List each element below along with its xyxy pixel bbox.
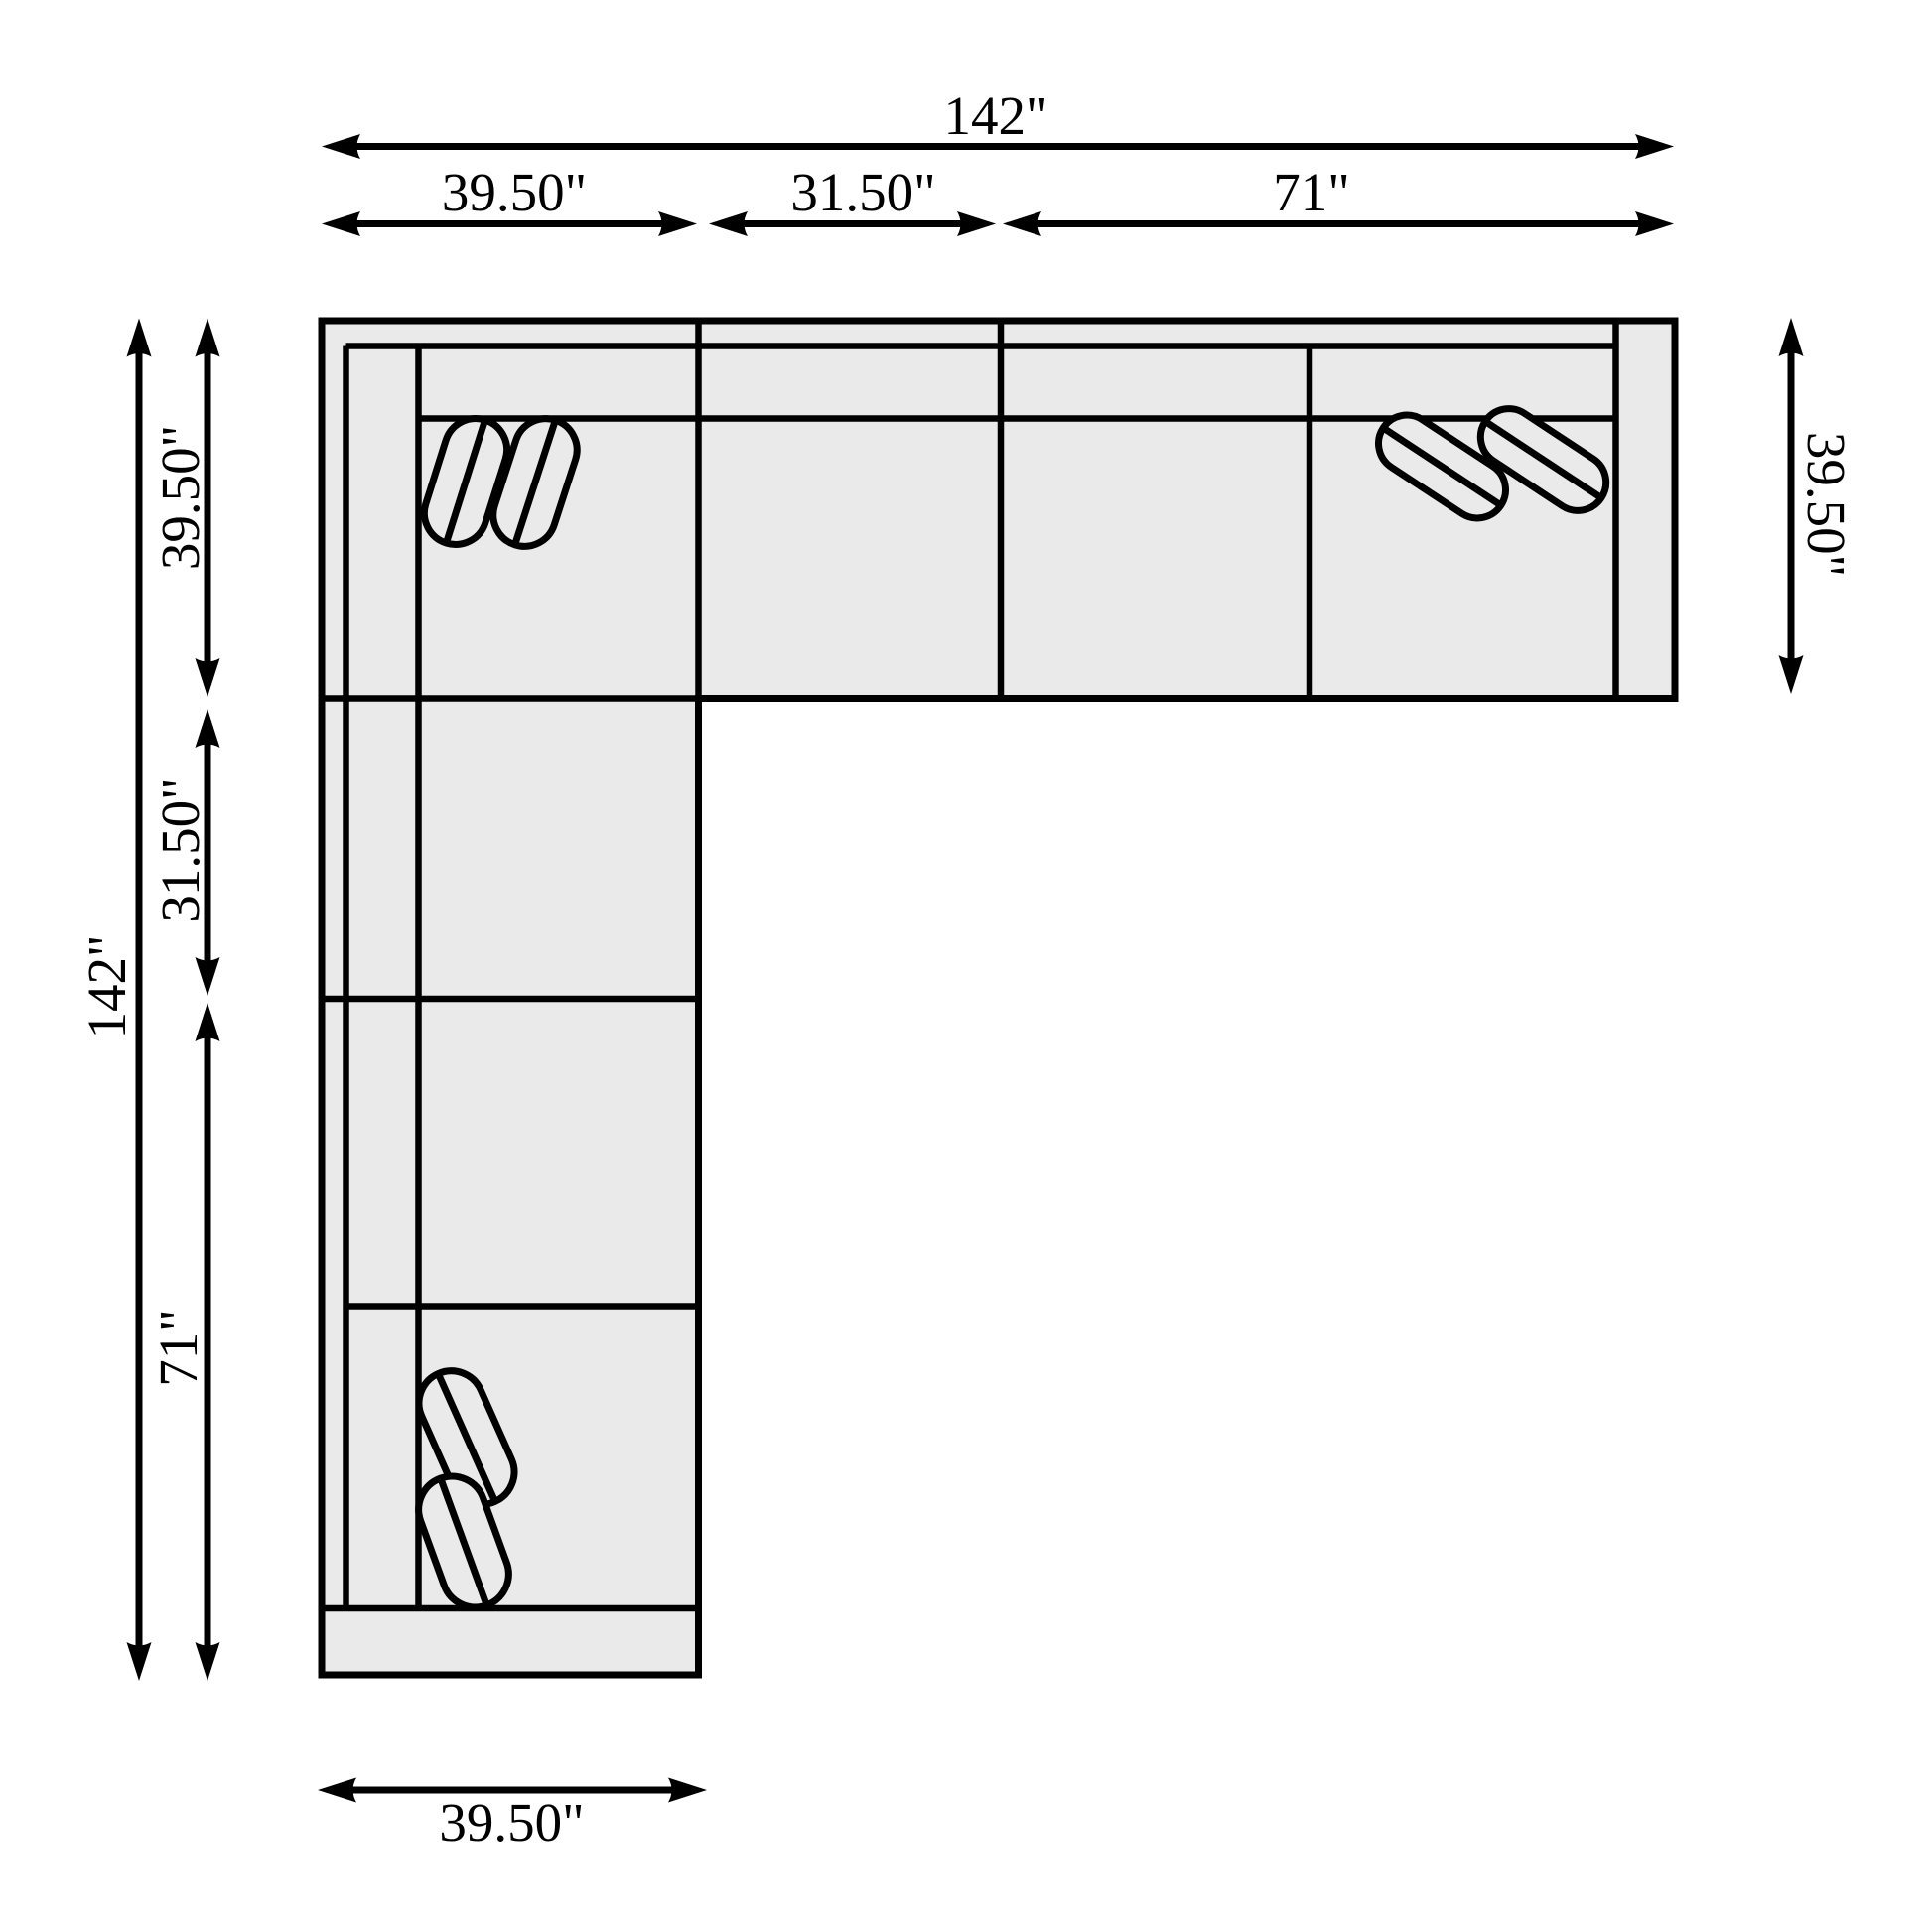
svg-text:71": 71" [148,1310,208,1386]
svg-text:39.50": 39.50" [442,162,587,222]
svg-text:31.50": 31.50" [790,162,935,222]
svg-text:31.50": 31.50" [150,777,210,922]
svg-text:142": 142" [76,935,137,1039]
svg-text:71": 71" [1273,162,1349,222]
svg-text:142": 142" [944,85,1048,146]
svg-text:39.50": 39.50" [150,425,210,570]
svg-text:39.50": 39.50" [1796,432,1857,577]
svg-text:39.50": 39.50" [439,1792,584,1853]
